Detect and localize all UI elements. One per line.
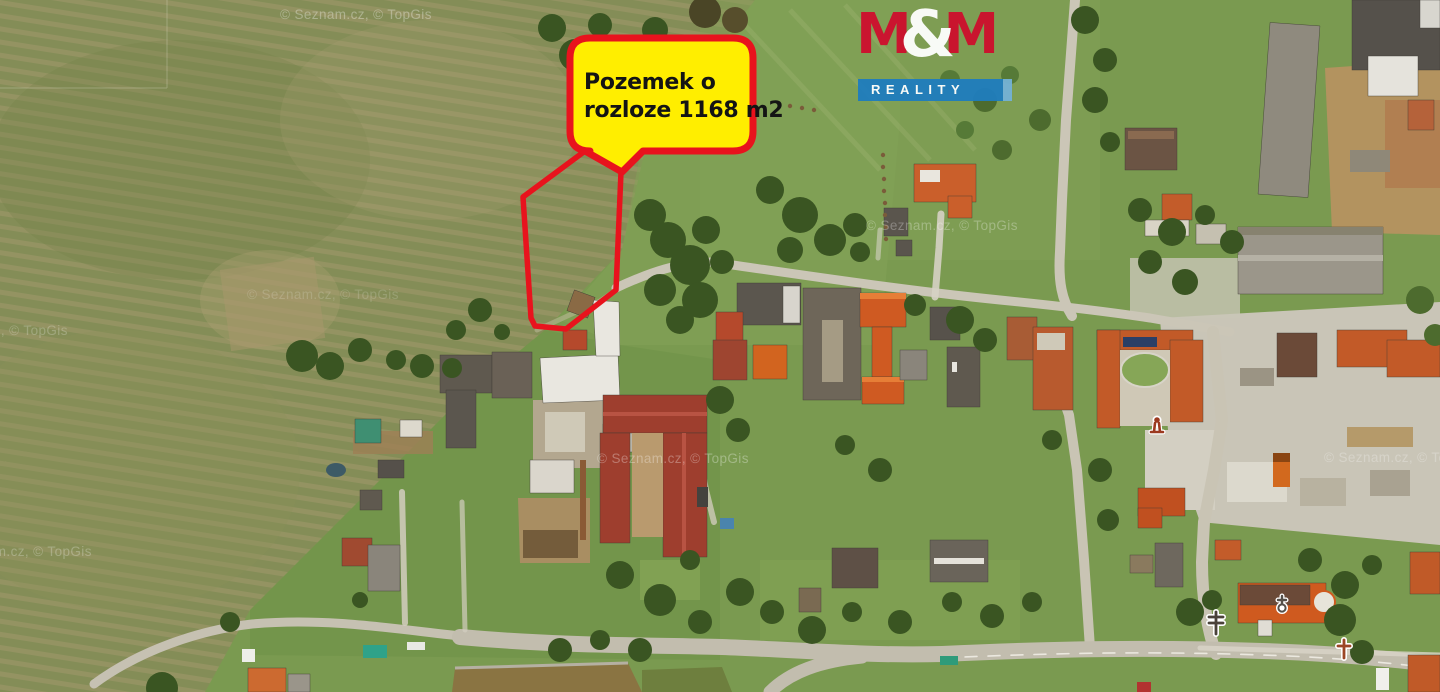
- south-house: [930, 540, 988, 582]
- warehouse: [1238, 227, 1383, 294]
- truck: [1273, 453, 1290, 487]
- logo-reality-text: REALITY: [858, 79, 1012, 101]
- logo-m-right: M: [944, 2, 995, 67]
- logo-ampersand: &: [900, 0, 951, 72]
- red-farm-complex: [600, 395, 707, 557]
- logo-reality-bar: REALITY: [858, 79, 1012, 101]
- callout-line1: Pozemek o: [584, 70, 716, 95]
- logo-bar-endcap: [1003, 79, 1012, 101]
- logo-mm: M&M: [856, 4, 994, 63]
- callout-line2: rozloze 1168 m2: [584, 98, 783, 123]
- courtyard-farm: [1097, 330, 1203, 428]
- aerial-photo: Pozemek o rozloze 1168 m2: [0, 0, 1440, 692]
- church-icon: [1276, 596, 1288, 614]
- pond-green: [642, 667, 732, 692]
- mm-reality-logo: M&M REALITY: [856, 18, 1016, 104]
- aerial-map: Pozemek o rozloze 1168 m2 M&M REALITY © …: [0, 0, 1440, 692]
